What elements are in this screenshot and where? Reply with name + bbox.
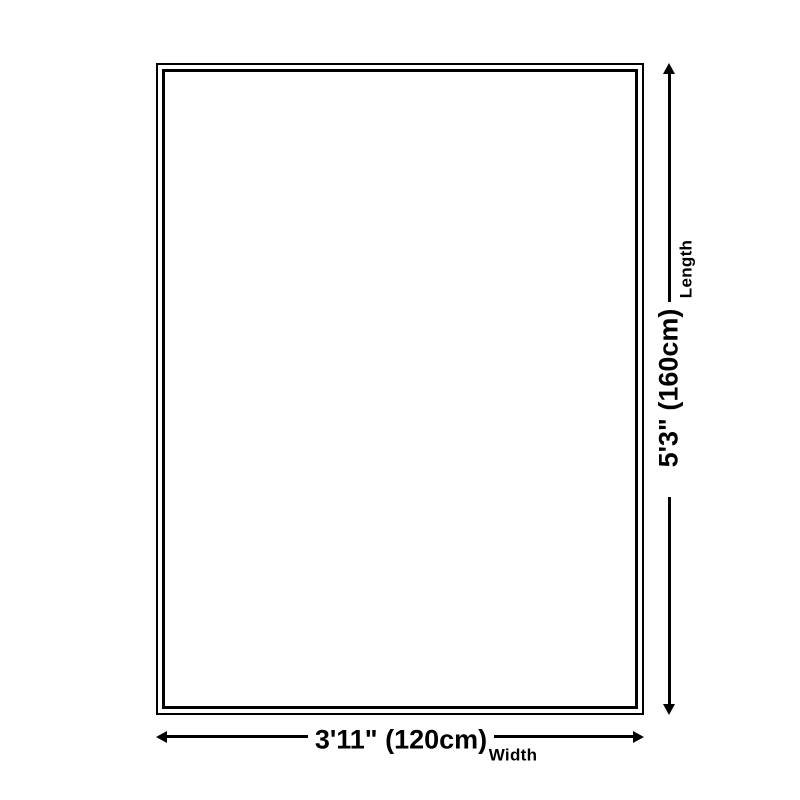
width-label: Width <box>489 747 538 764</box>
length-label: Length <box>678 240 695 298</box>
rug-inner-border <box>162 69 638 709</box>
width-value: 3'11" (120cm) <box>315 727 487 754</box>
width-arrow-left-segment <box>166 735 308 738</box>
rug-dimension-diagram: Length 5'3" (160cm) 3'11" (120cm) Width <box>0 0 800 800</box>
arrow-right-icon <box>633 731 644 743</box>
rug-outline <box>156 63 644 715</box>
arrow-down-icon <box>663 704 675 715</box>
width-arrow-right-segment <box>494 735 634 738</box>
length-arrow-bottom-segment <box>668 497 671 705</box>
length-arrow-top-segment <box>668 72 671 302</box>
length-value: 5'3" (160cm) <box>656 309 683 468</box>
